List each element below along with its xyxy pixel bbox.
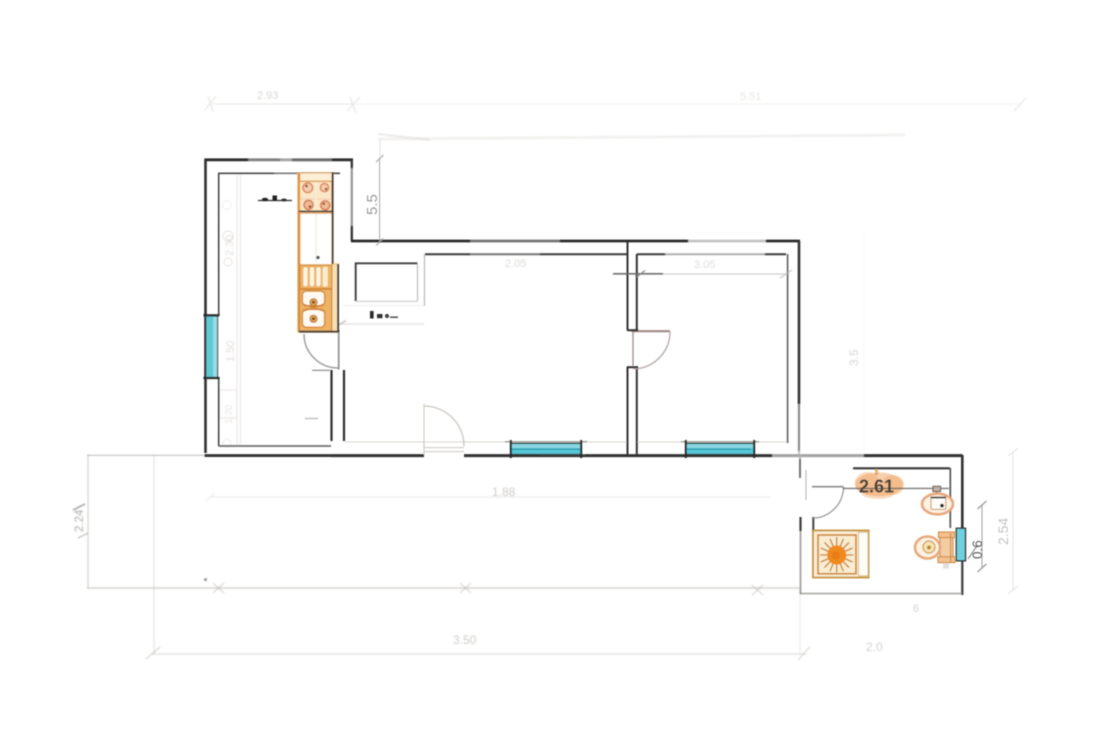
svg-text:1.20: 1.20 xyxy=(224,404,235,424)
svg-text:2.05: 2.05 xyxy=(505,258,526,270)
svg-text:2.0: 2.0 xyxy=(866,640,883,654)
svg-text:1.50: 1.50 xyxy=(225,341,237,362)
svg-text:2.93: 2.93 xyxy=(257,90,278,102)
svg-text:2.61: 2.61 xyxy=(859,477,894,497)
svg-text:5.5: 5.5 xyxy=(364,194,381,215)
svg-text:5.51: 5.51 xyxy=(740,91,761,103)
svg-text:2.24: 2.24 xyxy=(74,509,86,532)
svg-text:2.30: 2.30 xyxy=(224,235,236,256)
svg-text:3.50: 3.50 xyxy=(453,633,477,647)
svg-text:0.6: 0.6 xyxy=(970,540,985,559)
svg-text:3.5: 3.5 xyxy=(847,349,861,366)
svg-text:2.54: 2.54 xyxy=(995,518,1011,545)
svg-text:6: 6 xyxy=(913,603,919,615)
svg-text:3.05: 3.05 xyxy=(694,259,715,271)
svg-text:1.88: 1.88 xyxy=(492,485,516,499)
